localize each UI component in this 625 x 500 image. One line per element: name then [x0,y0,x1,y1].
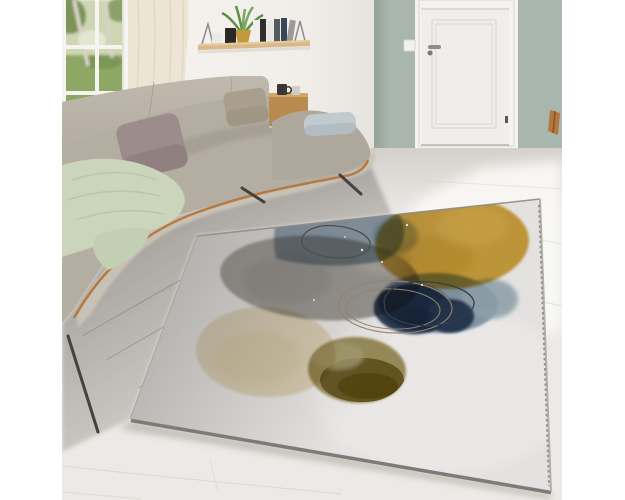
book [260,19,266,44]
vase [212,33,222,44]
canister [225,28,236,44]
frame-shadow-line [122,0,124,103]
living-room-scene [62,0,562,500]
wall-corner-shadow [374,0,390,153]
book [274,19,280,44]
book [267,20,273,44]
book [281,18,287,44]
book [253,20,259,44]
door-handle-icon [428,45,441,49]
product-photo-page [0,0,625,500]
door-keyhole-icon [428,51,433,56]
window-muntin [66,45,122,49]
pillow-silver [303,111,356,137]
photo-area [62,0,562,500]
light-switch [404,40,415,51]
chair-leg [548,110,560,135]
window-muntin [95,0,99,103]
cup [292,86,300,95]
door-catch [505,116,508,123]
door [404,0,518,150]
pillow-taupe [223,87,270,127]
mug [277,84,287,95]
